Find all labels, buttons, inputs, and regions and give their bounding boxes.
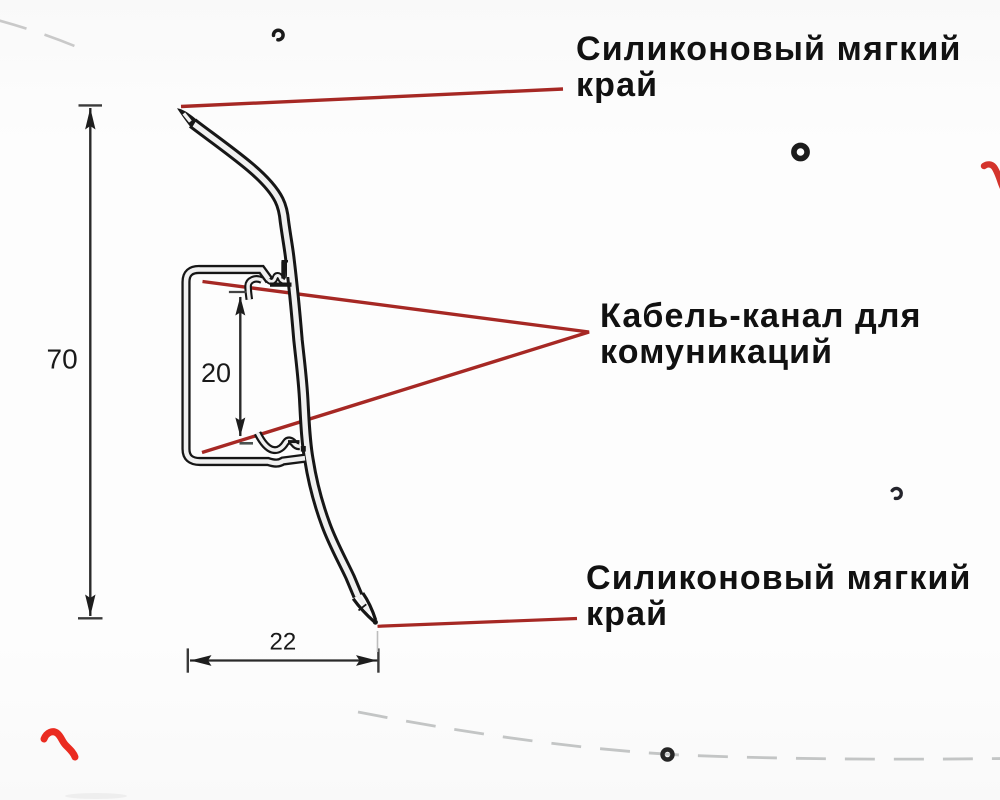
svg-text:22: 22 [270,629,297,656]
svg-text:20: 20 [201,358,231,388]
svg-text:70: 70 [47,344,78,375]
